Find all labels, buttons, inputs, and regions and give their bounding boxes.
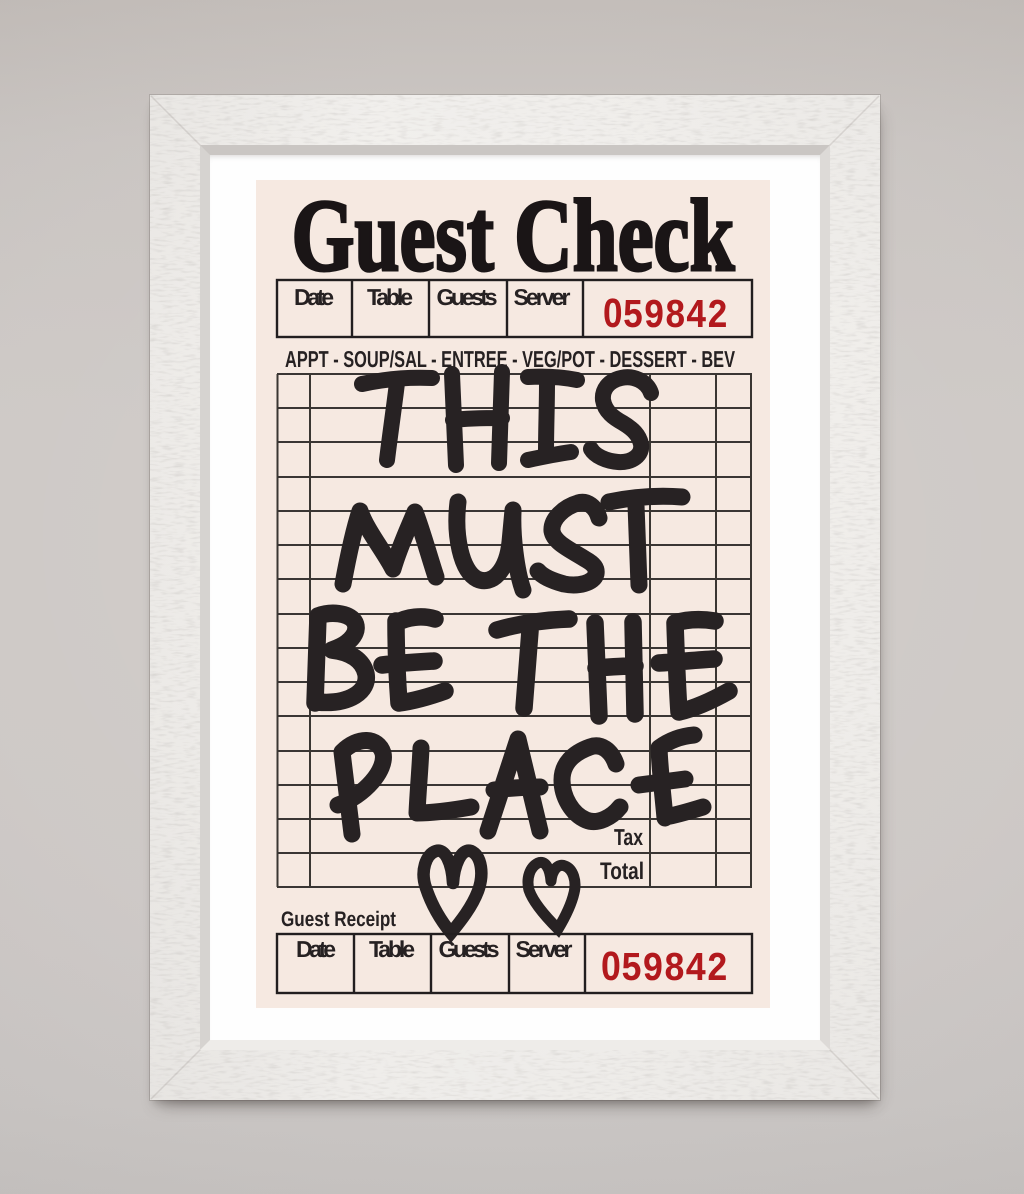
svg-text:Date: Date [294,284,334,310]
svg-text:Guest Receipt: Guest Receipt [281,908,396,931]
svg-text:Guest Check: Guest Check [292,180,736,293]
svg-text:APPT - SOUP/SAL - ENTREE - VEG: APPT - SOUP/SAL - ENTREE - VEG/POT - DES… [285,346,735,372]
svg-text:059842: 059842 [603,290,728,340]
svg-text:Server: Server [514,284,571,310]
svg-text:Server: Server [516,936,573,962]
svg-text:Tax: Tax [614,824,643,850]
svg-text:Guests: Guests [437,284,498,310]
svg-text:Table: Table [367,284,413,310]
svg-text:Guests: Guests [439,936,500,962]
svg-text:Date: Date [296,936,336,962]
svg-text:Table: Table [369,936,415,962]
svg-text:059842: 059842 [601,943,728,993]
svg-text:Total: Total [600,858,644,885]
